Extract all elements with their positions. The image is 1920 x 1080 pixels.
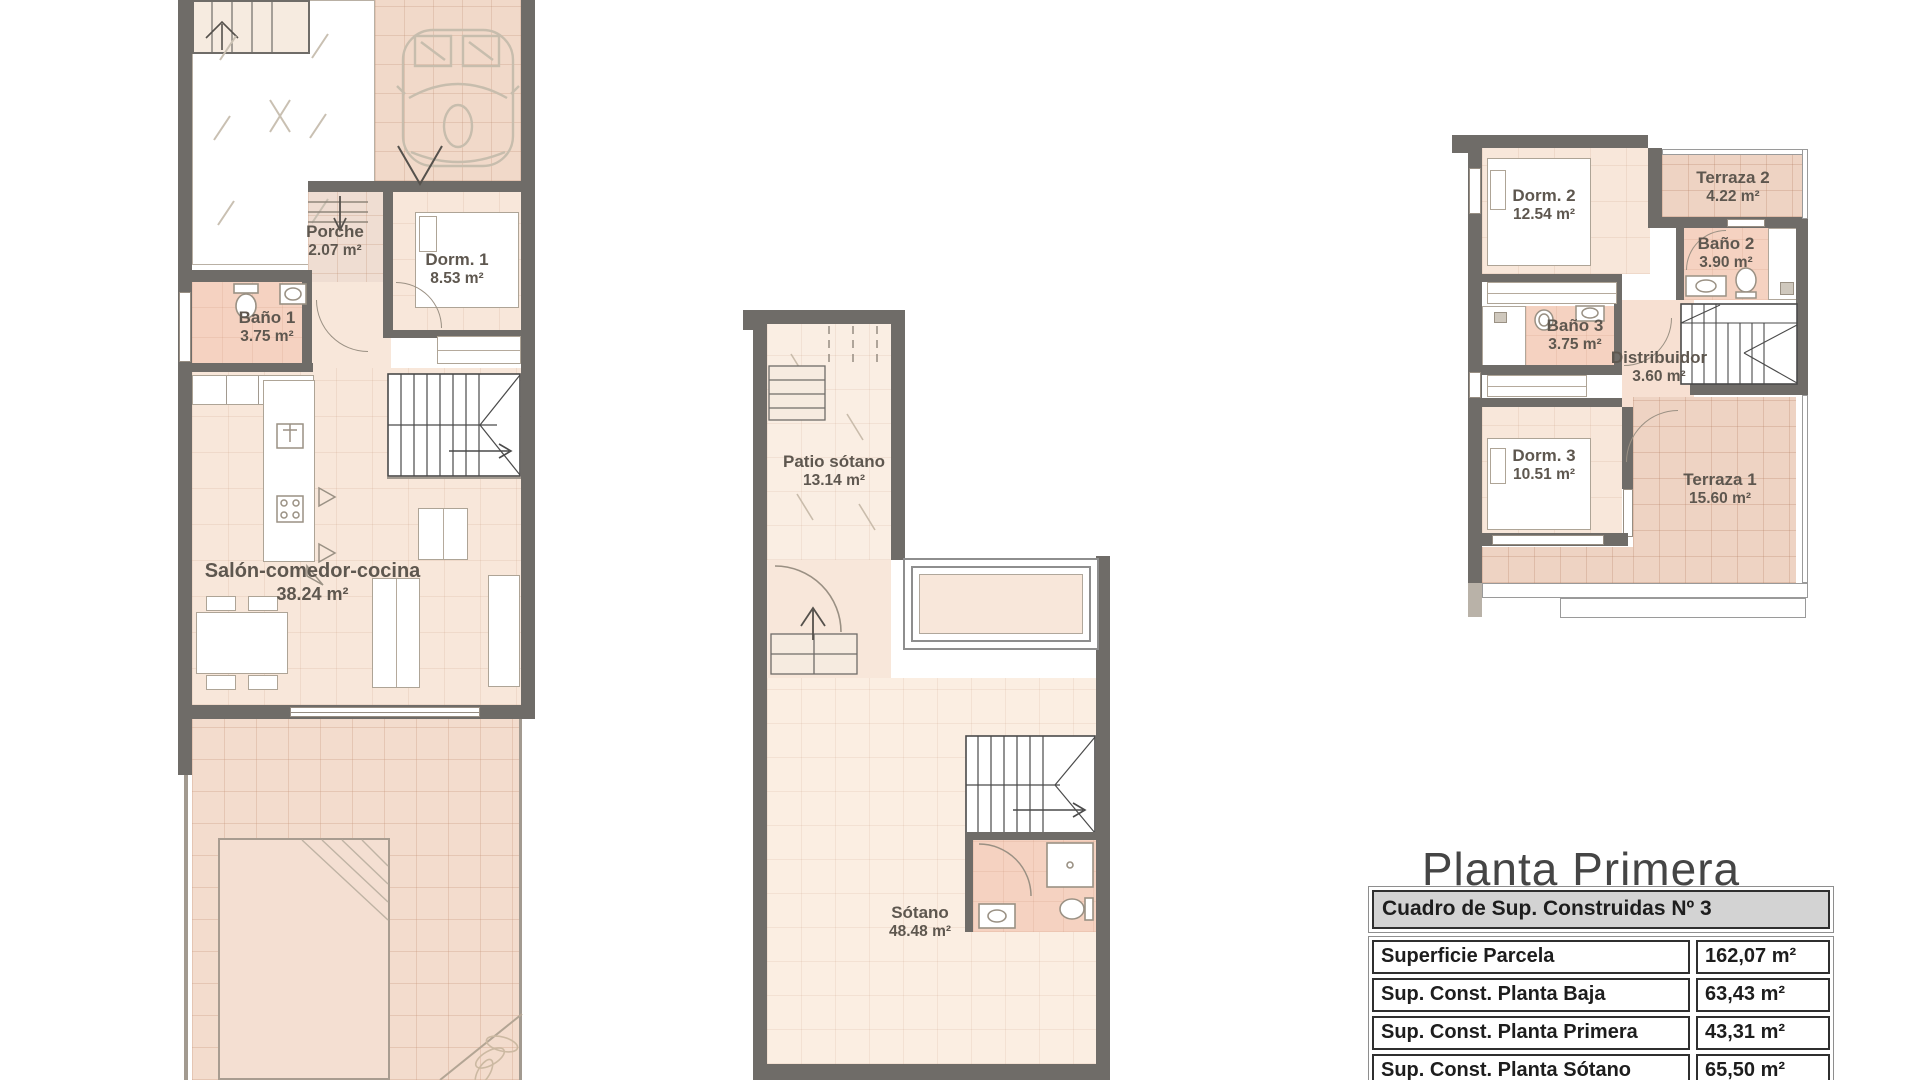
room-label-distribuidor: Distribuidor 3.60 m² (1600, 348, 1718, 386)
terrace2-railing-side (1802, 149, 1808, 219)
room-area: 2.07 m² (283, 242, 387, 260)
row-value: 63,43 m² (1696, 978, 1830, 1012)
wall (1676, 228, 1684, 300)
room-area: 3.90 m² (1686, 254, 1766, 272)
table-row: Sup. Const. Planta Sótano 65,50 m² (1372, 1054, 1830, 1080)
wall (1468, 583, 1482, 617)
room-label-sotano: Sótano 48.48 m² (852, 903, 988, 941)
room-area: 3.75 m² (212, 328, 322, 346)
room-label-bano1: Baño 1 3.75 m² (212, 308, 322, 346)
window (1623, 489, 1633, 537)
room-name: Dorm. 2 (1488, 186, 1600, 206)
room-name: Terraza 2 (1674, 168, 1792, 188)
room-label-dorm3: Dorm. 3 10.51 m² (1490, 446, 1598, 484)
row-label: Superficie Parcela (1372, 940, 1690, 974)
window (1469, 372, 1481, 398)
room-label-bano2: Baño 2 3.90 m² (1686, 234, 1766, 272)
surface-table-header-box: Cuadro de Sup. Construidas Nº 3 (1368, 886, 1834, 933)
room-name: Dorm. 1 (405, 250, 509, 270)
closet-box (1494, 312, 1507, 323)
room-area: 48.48 m² (852, 923, 988, 941)
room-area: 15.60 m² (1658, 490, 1782, 508)
room-name: Distribuidor (1600, 348, 1718, 368)
room-area: 13.14 m² (770, 472, 898, 490)
wall (753, 1064, 1110, 1080)
room-area: 3.60 m² (1600, 368, 1718, 386)
room-name: Patio sótano (770, 452, 898, 472)
room-name: Dorm. 3 (1490, 446, 1598, 466)
window (1492, 535, 1604, 545)
window (1469, 168, 1481, 214)
room-label-dorm1: Dorm. 1 8.53 m² (405, 250, 509, 288)
terrace1-railing (1482, 583, 1808, 598)
wall (1452, 135, 1648, 148)
room-label-dorm2: Dorm. 2 12.54 m² (1488, 186, 1600, 224)
row-value: 65,50 m² (1696, 1054, 1830, 1080)
room-area: 4.22 m² (1674, 188, 1792, 206)
room-area: 8.53 m² (405, 270, 509, 288)
wall (1452, 135, 1468, 153)
row-label: Sup. Const. Planta Primera (1372, 1016, 1690, 1050)
wall (965, 832, 1096, 840)
room-name: Baño 3 (1528, 316, 1622, 336)
room-name: Baño 2 (1686, 234, 1766, 254)
basement-stair (965, 735, 1096, 835)
terrace1-lower-ledge (1560, 598, 1806, 618)
surface-table-header: Cuadro de Sup. Construidas Nº 3 (1372, 890, 1830, 929)
room-name: Porche (283, 222, 387, 242)
closet (1487, 375, 1587, 397)
row-label: Sup. Const. Planta Sótano (1372, 1054, 1690, 1080)
room-label-porche: Porche 2.07 m² (283, 222, 387, 260)
row-value: 43,31 m² (1696, 1016, 1830, 1050)
basement-bathroom-fixtures (973, 840, 1096, 932)
room-name: Salón-comedor-cocina (190, 560, 435, 584)
room-label-patio-sotano: Patio sótano 13.14 m² (770, 452, 898, 490)
wall (1648, 148, 1662, 220)
table-row: Sup. Const. Planta Primera 43,31 m² (1372, 1016, 1830, 1050)
table-row: Superficie Parcela 162,07 m² (1372, 940, 1830, 974)
window (1727, 219, 1765, 227)
row-label: Sup. Const. Planta Baja (1372, 978, 1690, 1012)
wall (1482, 398, 1622, 407)
room-label-terraza2: Terraza 2 4.22 m² (1674, 168, 1792, 206)
terrace1-railing-side (1802, 395, 1808, 583)
room-area: 10.51 m² (1490, 466, 1598, 484)
surface-table: Superficie Parcela 162,07 m² Sup. Const.… (1368, 936, 1834, 1080)
closet (1487, 282, 1617, 304)
terrace2-railing (1662, 149, 1808, 155)
floor-plan-sheet: Porche 2.07 m² Dorm. 1 8.53 m² Baño 1 3.… (0, 0, 1920, 1080)
terrace1-floor-strip (1482, 547, 1633, 583)
wall (1482, 274, 1622, 282)
room-area: 38.24 m² (190, 584, 435, 605)
room-name: Terraza 1 (1658, 470, 1782, 490)
washer (1780, 282, 1794, 295)
row-value: 162,07 m² (1696, 940, 1830, 974)
room-name: Baño 1 (212, 308, 322, 328)
room-name: Sótano (852, 903, 988, 923)
room-area: 12.54 m² (1488, 206, 1600, 224)
table-row: Sup. Const. Planta Baja 63,43 m² (1372, 978, 1830, 1012)
room-label-terraza1: Terraza 1 15.60 m² (1658, 470, 1782, 508)
room-label-salon: Salón-comedor-cocina 38.24 m² (190, 560, 435, 605)
